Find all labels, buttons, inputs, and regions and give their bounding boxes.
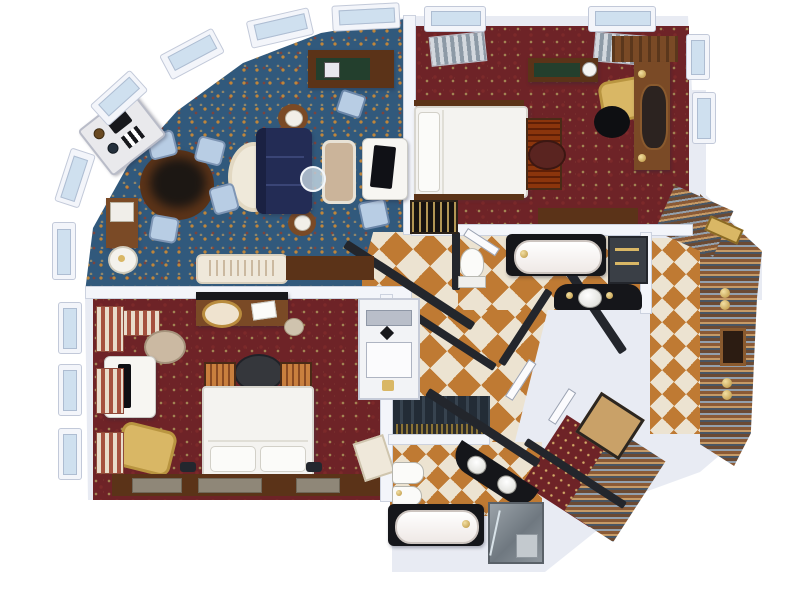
bay-window-5-glass <box>254 13 308 40</box>
bay-window-6-glass <box>339 7 396 25</box>
left-wall-window-1-glass <box>63 308 77 349</box>
masterbed-luggage-bench <box>410 200 458 234</box>
bath2-toilet <box>392 462 424 484</box>
master-dresser <box>634 62 670 170</box>
master-vanity-tap-r <box>606 292 613 299</box>
master-window-left <box>424 6 486 32</box>
floor-plan-canvas <box>0 0 800 600</box>
bay-window-6 <box>331 2 400 32</box>
dining-table-blur-blob <box>150 158 206 208</box>
console-dish <box>582 62 597 77</box>
master-window-right <box>588 6 656 32</box>
master-tub-tap <box>520 250 528 258</box>
bedroom2-curtain-2 <box>96 368 124 414</box>
vanity-mirror-oval <box>202 300 242 328</box>
master-black-table <box>594 106 630 138</box>
left-wall-window-1 <box>58 302 82 354</box>
master-window-right-glass <box>595 11 651 26</box>
bath2-sink-1 <box>463 452 490 478</box>
bath2-bidet-tap <box>396 490 402 496</box>
round-lamp-table <box>108 246 138 274</box>
sconce-1b <box>720 300 730 310</box>
dresser-candle-2 <box>638 154 646 162</box>
slippers-right <box>306 462 322 472</box>
bath2-sink-2 <box>494 472 521 498</box>
bedroom2-curtain-3 <box>96 432 124 474</box>
trolley-bottle-1 <box>91 126 106 141</box>
sconce-2b <box>722 390 732 400</box>
shower-glass-line <box>489 510 501 555</box>
vanity-papers <box>251 300 277 320</box>
master-bathtub <box>514 240 602 274</box>
master-vanity-sink <box>578 288 602 308</box>
bay-window-4 <box>159 28 225 81</box>
dining-chair-4 <box>148 214 180 244</box>
bath2-bidet <box>392 486 422 506</box>
glass-coffee-table <box>300 166 326 192</box>
right-wall-window-1 <box>686 34 710 80</box>
vanity-black-top <box>196 292 288 300</box>
tray-lower <box>294 215 311 231</box>
closet-drawer-box <box>366 342 412 378</box>
armchair-tan <box>322 140 356 204</box>
master-bed <box>414 106 528 198</box>
walkway-mat-2 <box>198 478 262 493</box>
closet-diamond <box>380 326 394 340</box>
walkway-mat-1 <box>132 478 182 493</box>
bath2-tub-tap <box>462 520 470 528</box>
left-wall-window-3 <box>58 428 82 480</box>
sideboard-tv-cabinet <box>308 50 394 88</box>
corridor-picture-frame <box>720 328 746 366</box>
masterbed-bottom-console <box>538 208 638 224</box>
hall-cabinet-top <box>110 202 134 222</box>
dresser-mirror <box>640 84 668 150</box>
sconce-1a <box>720 288 730 298</box>
luggage-closet <box>358 298 420 400</box>
bedroom2-bed-pillow-left <box>210 446 256 472</box>
sofa-cushion-line <box>264 156 304 158</box>
lamp-base <box>118 255 125 262</box>
wall-bath2-top <box>388 434 490 445</box>
masterbed-curtain-left <box>429 31 488 67</box>
right-wall-window-2-glass <box>697 98 711 139</box>
master-window-left-glass <box>431 11 481 26</box>
sideboard-tv-screen <box>324 62 340 78</box>
bedroom2-vanity-desk <box>196 292 288 326</box>
bay-window-2 <box>54 147 96 208</box>
corridor-checker-strip <box>650 238 702 434</box>
vanity-stool <box>284 318 304 336</box>
living-bottom-console <box>286 256 374 280</box>
desk-tv <box>370 145 396 189</box>
slippers-left <box>180 462 196 472</box>
bay-window-2-glass <box>60 156 88 202</box>
walkway-mat-3 <box>296 478 340 493</box>
sofa-cushion-line2 <box>264 184 304 186</box>
master-toilet-tank <box>458 276 486 288</box>
left-wall-window-2-glass <box>63 370 77 411</box>
masterbed-console-green-top <box>534 63 580 77</box>
window-seat-sofa <box>196 254 288 284</box>
bedroom2-curtain-1 <box>96 306 124 352</box>
masterbed-wardrobe <box>612 36 678 62</box>
trolley-bottle-2 <box>105 141 120 156</box>
bay-window-4-glass <box>167 34 217 71</box>
dresser-candle-1 <box>638 70 646 78</box>
bedroom2-bed <box>202 386 314 478</box>
hall-cabinet <box>106 198 138 248</box>
bedroom2-bed-foldline <box>208 440 308 442</box>
master-bath-marble-niche <box>608 236 648 284</box>
window-seat-stripes <box>204 260 276 276</box>
blue-ottoman-bottom <box>357 197 390 230</box>
bath2-shower <box>488 502 544 564</box>
master-bed-frame-top <box>414 100 524 106</box>
closet-shelf-top <box>366 310 412 326</box>
left-wall-window-3-glass <box>63 434 77 475</box>
closet-gold-item <box>382 380 394 391</box>
sconce-2a <box>722 378 732 388</box>
master-bed-pillows <box>418 112 440 192</box>
masterbed-tv-console <box>528 58 598 82</box>
master-round-ottoman <box>528 140 566 170</box>
master-bed-foldline <box>442 110 444 194</box>
master-vanity-tap-l <box>566 292 573 299</box>
bay-window-1 <box>52 222 76 280</box>
sofa-back-edge <box>256 128 266 214</box>
towel-rack-1 <box>615 248 639 251</box>
bay-window-1-glass <box>57 229 71 275</box>
towel-rack-2 <box>615 262 639 265</box>
right-wall-window-1-glass <box>691 40 705 75</box>
bedroom2-bed-pillow-right <box>260 446 306 472</box>
shower-bench <box>516 534 538 558</box>
master-toilet <box>460 248 484 278</box>
trolley-shelf-grid <box>121 126 145 149</box>
tray-upper <box>285 110 303 127</box>
right-wall-window-2 <box>692 92 716 144</box>
left-wall-window-2 <box>58 364 82 416</box>
